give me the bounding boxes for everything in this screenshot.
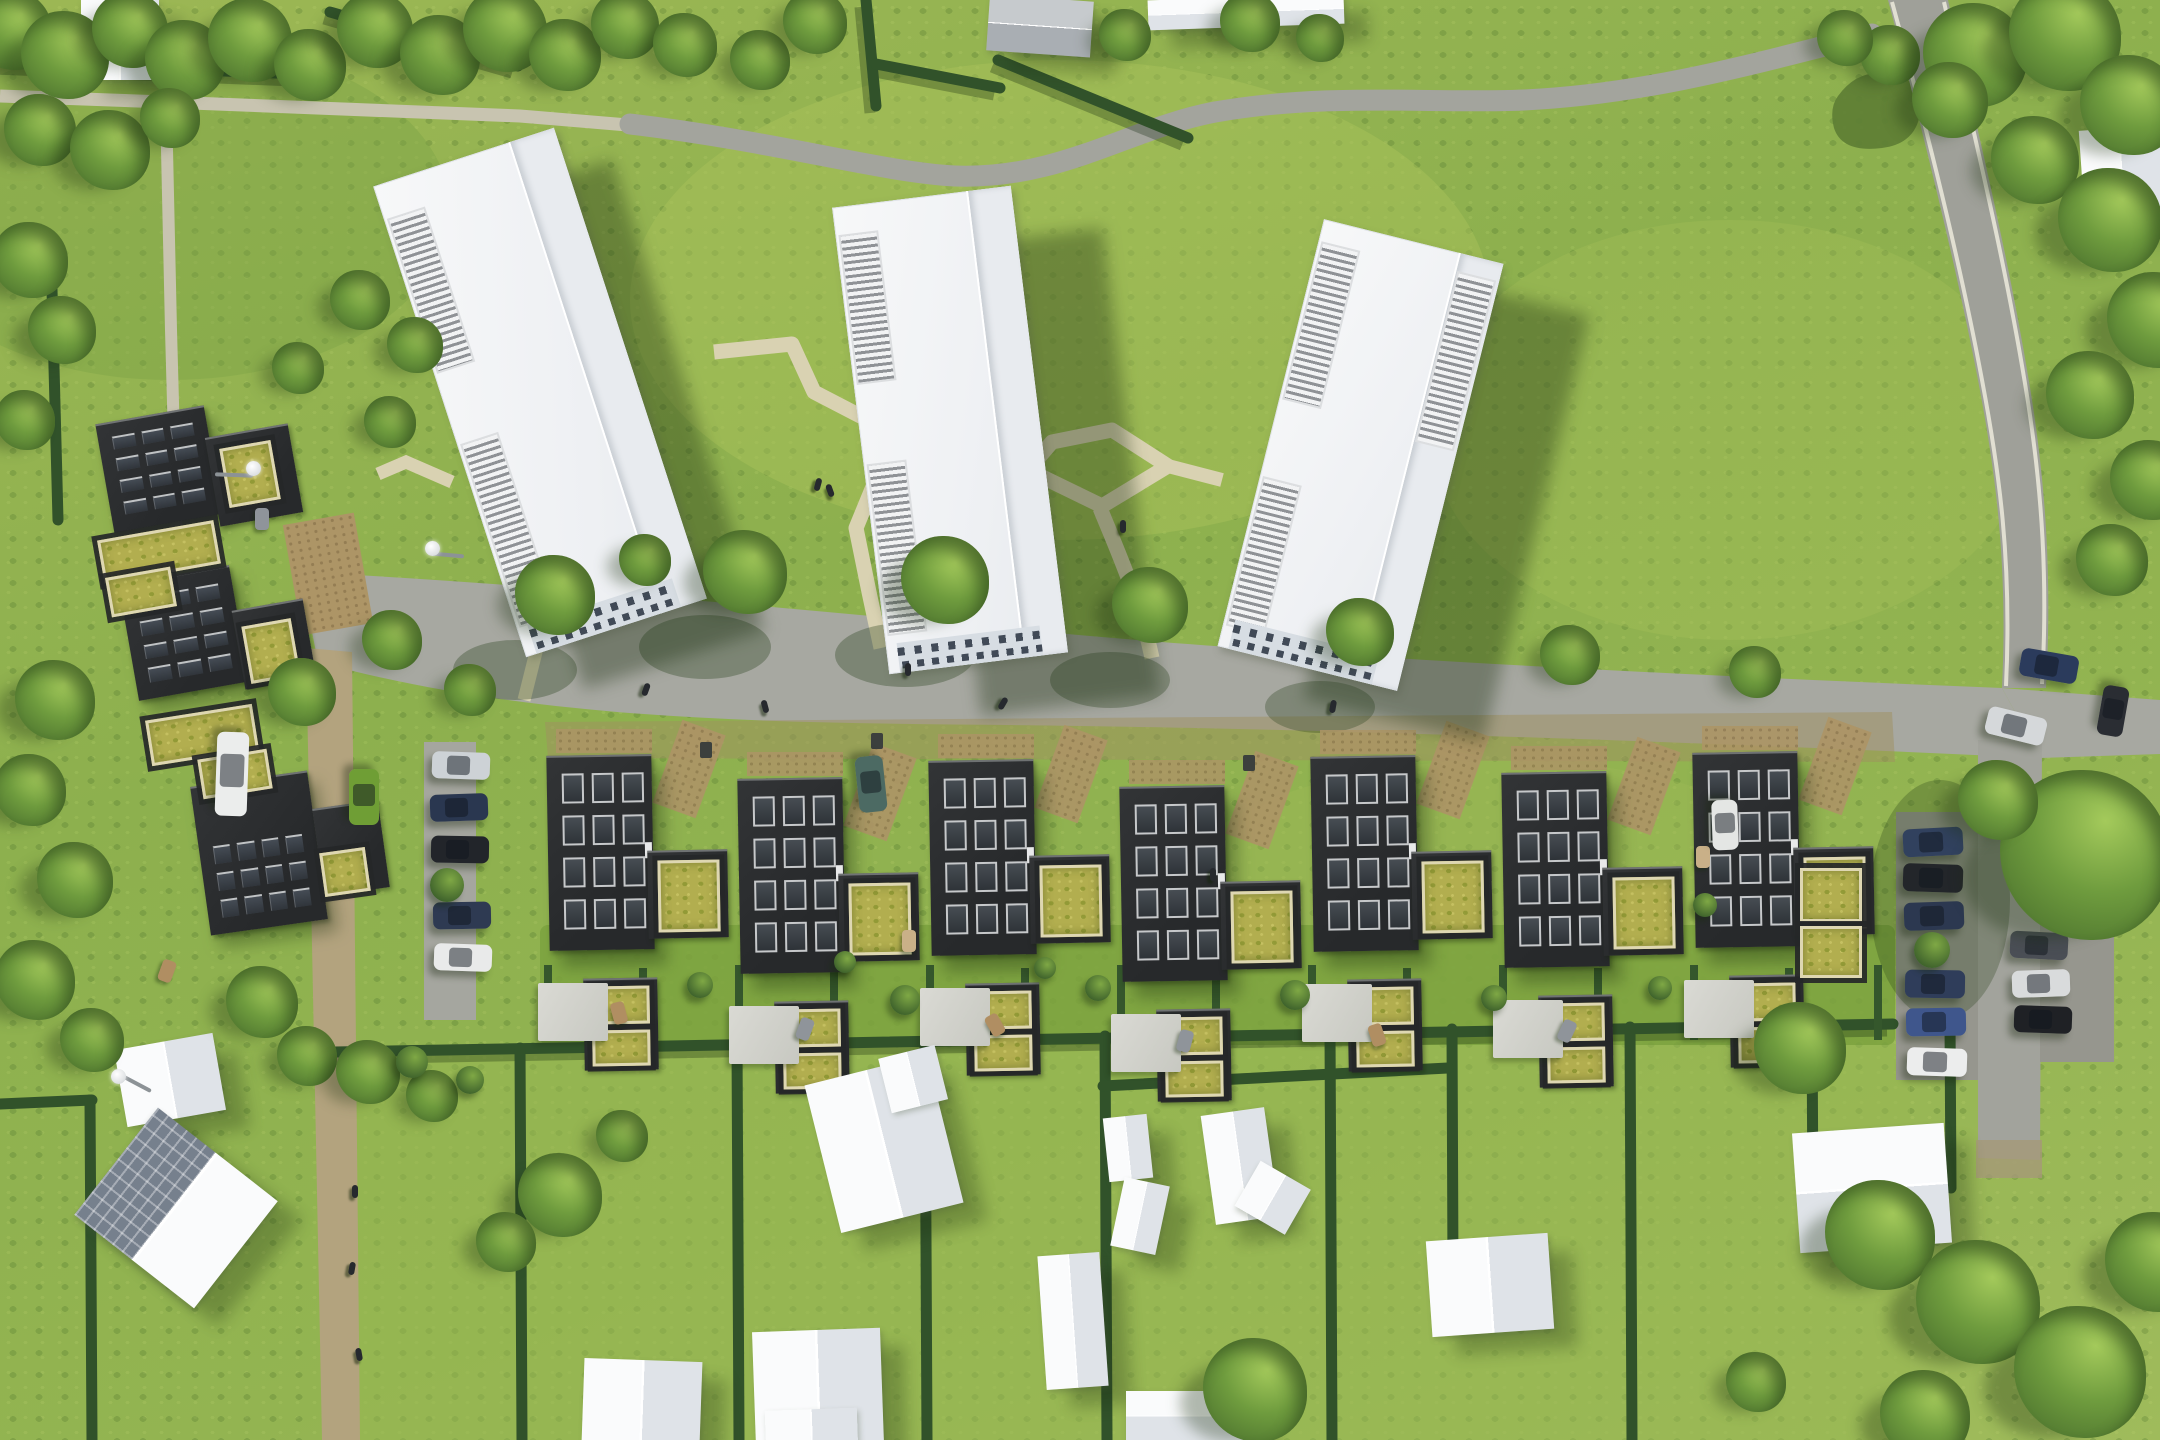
townhouse-block bbox=[546, 754, 654, 951]
solar-panel bbox=[213, 844, 233, 864]
roof-skylight bbox=[1006, 903, 1029, 933]
car-glass bbox=[353, 784, 375, 806]
front-yard-gravel bbox=[938, 734, 1034, 758]
garden-terrace bbox=[729, 1006, 799, 1064]
tree bbox=[272, 342, 324, 394]
garden-terrace bbox=[538, 983, 608, 1041]
car-glass bbox=[1715, 813, 1735, 834]
tree bbox=[330, 270, 390, 330]
street-lamp bbox=[246, 461, 261, 476]
parked-car bbox=[1904, 901, 1965, 931]
roof-skylight bbox=[1739, 854, 1762, 884]
solar-panel bbox=[112, 433, 137, 450]
tree bbox=[1540, 625, 1600, 685]
street-lamp bbox=[111, 1069, 126, 1084]
solar-panel bbox=[119, 476, 144, 493]
tree bbox=[387, 317, 443, 373]
roof-skylight bbox=[1518, 874, 1541, 904]
parked-car bbox=[433, 901, 491, 929]
pedestrian bbox=[1120, 520, 1126, 533]
roof-skylight bbox=[1135, 804, 1158, 834]
roof-skylight bbox=[594, 899, 617, 929]
car-glass bbox=[2027, 973, 2051, 994]
roof-skylight bbox=[974, 820, 997, 850]
parked-car bbox=[854, 755, 888, 814]
tree bbox=[0, 754, 66, 826]
car-glass bbox=[447, 755, 471, 776]
car-glass bbox=[1921, 1011, 1945, 1032]
parked-car bbox=[2018, 647, 2080, 685]
solar-panel bbox=[285, 834, 305, 854]
garden-furniture bbox=[1696, 846, 1710, 868]
roof-skylight bbox=[1387, 857, 1410, 887]
solar-panel bbox=[220, 897, 240, 917]
parked-car bbox=[1903, 863, 1964, 893]
solar-panel bbox=[177, 659, 203, 678]
tree bbox=[2076, 524, 2148, 596]
roof-skylight bbox=[562, 773, 585, 803]
car-glass bbox=[2033, 653, 2059, 677]
sedum-roof bbox=[1039, 864, 1102, 937]
roof-skylight bbox=[785, 922, 808, 952]
roof-skylight bbox=[1197, 929, 1220, 959]
roof-skylight bbox=[1517, 832, 1540, 862]
townhouse-block bbox=[1310, 755, 1418, 952]
tree bbox=[444, 664, 496, 716]
front-yard-gravel bbox=[1511, 746, 1607, 770]
solar-panel bbox=[264, 864, 284, 884]
solar-panel bbox=[288, 861, 308, 881]
white-house bbox=[1426, 1233, 1554, 1337]
waste-bin bbox=[871, 733, 883, 749]
roof-skylight bbox=[1165, 804, 1188, 834]
roof-skylight bbox=[814, 879, 837, 909]
roof-skylight bbox=[783, 838, 806, 868]
solar-panel bbox=[292, 887, 312, 907]
roof-skylight bbox=[624, 898, 647, 928]
white-house bbox=[582, 1358, 703, 1440]
solar-panel bbox=[169, 612, 195, 631]
pedestrian bbox=[760, 699, 769, 713]
roof-skylight bbox=[1768, 769, 1791, 799]
sedum-roof bbox=[1800, 926, 1862, 978]
parked-car bbox=[2012, 969, 2071, 998]
roof-skylight bbox=[564, 899, 587, 929]
tree bbox=[28, 296, 96, 364]
pedestrian bbox=[1329, 700, 1337, 714]
solar-building bbox=[95, 405, 222, 532]
bush bbox=[1034, 957, 1056, 979]
tree bbox=[1754, 1002, 1846, 1094]
roof-skylight bbox=[1327, 858, 1350, 888]
garden-furniture bbox=[157, 958, 178, 983]
sedum-roof bbox=[657, 859, 720, 932]
car-glass bbox=[1918, 831, 1943, 853]
tree bbox=[364, 396, 416, 448]
bush bbox=[890, 985, 920, 1015]
roof-skylight bbox=[562, 815, 585, 845]
roof-skylight bbox=[1196, 887, 1219, 917]
townhouse-block bbox=[928, 759, 1036, 956]
front-yard-gravel bbox=[1129, 760, 1225, 784]
house-wing bbox=[878, 1045, 948, 1113]
car-glass bbox=[1922, 1051, 1947, 1073]
pedestrian bbox=[905, 663, 911, 676]
roof-skylight bbox=[1326, 774, 1349, 804]
roof-skylight bbox=[946, 904, 969, 934]
solar-panel bbox=[139, 617, 165, 636]
solar-panel bbox=[237, 841, 257, 861]
pedestrian bbox=[825, 483, 835, 497]
tree bbox=[1817, 10, 1873, 66]
parked-car bbox=[1984, 705, 2049, 747]
tree bbox=[60, 1008, 124, 1072]
bush bbox=[396, 1046, 428, 1078]
solar-panel bbox=[143, 641, 169, 660]
roof-skylight bbox=[1708, 770, 1731, 800]
parked-car bbox=[1711, 800, 1739, 851]
tree bbox=[596, 1110, 648, 1162]
tree bbox=[1880, 1370, 1970, 1440]
roof-skylight bbox=[1548, 874, 1571, 904]
roof-skylight bbox=[1135, 846, 1158, 876]
sedum-roof bbox=[1421, 860, 1484, 933]
car-glass bbox=[449, 947, 473, 968]
front-yard-gravel bbox=[1320, 730, 1416, 754]
car-glass bbox=[2029, 1009, 2053, 1030]
tree bbox=[619, 534, 671, 586]
roof-terrace-louvers bbox=[838, 230, 896, 384]
car-glass bbox=[1918, 867, 1943, 889]
pedestrian bbox=[1210, 868, 1216, 881]
tree bbox=[0, 940, 75, 1020]
parked-car bbox=[1907, 1047, 1968, 1077]
roof-skylight bbox=[1769, 853, 1792, 883]
tree bbox=[37, 842, 113, 918]
tree bbox=[1958, 760, 2038, 840]
solar-panel bbox=[207, 654, 233, 673]
roof-terrace-louvers bbox=[1225, 476, 1301, 635]
garden-terrace bbox=[1302, 984, 1372, 1042]
tree bbox=[0, 222, 68, 298]
solar-panel bbox=[141, 428, 166, 445]
tree bbox=[0, 390, 55, 450]
roof-skylight bbox=[1740, 896, 1763, 926]
roof-skylight bbox=[1166, 888, 1189, 918]
roof-skylight bbox=[1768, 811, 1791, 841]
bush bbox=[1693, 893, 1717, 917]
bush bbox=[1085, 975, 1111, 1001]
tree bbox=[901, 536, 989, 624]
roof-skylight bbox=[1004, 777, 1027, 807]
roof-skylight bbox=[1386, 773, 1409, 803]
car-glass bbox=[448, 905, 472, 925]
parked-car bbox=[432, 751, 491, 780]
garden-terrace bbox=[1684, 980, 1754, 1038]
parked-car bbox=[1906, 1007, 1966, 1036]
roof-skylight bbox=[1738, 812, 1761, 842]
roof-skylight bbox=[784, 880, 807, 910]
bush bbox=[1648, 976, 1672, 1000]
car-glass bbox=[445, 797, 469, 818]
solar-panel bbox=[261, 837, 281, 857]
solar-panel bbox=[244, 894, 264, 914]
parked-car bbox=[2014, 1005, 2073, 1034]
front-yard-gravel bbox=[747, 752, 843, 776]
front-yard-gravel bbox=[556, 729, 652, 753]
roof-skylight bbox=[1738, 770, 1761, 800]
pedestrian bbox=[641, 682, 651, 696]
roof-skylight bbox=[944, 820, 967, 850]
roof-skylight bbox=[1357, 858, 1380, 888]
solar-panel bbox=[152, 493, 177, 510]
sedum-roof bbox=[319, 847, 371, 897]
solar-panel bbox=[123, 498, 148, 515]
car-glass bbox=[1919, 905, 1944, 927]
roof-skylight bbox=[1577, 831, 1600, 861]
waste-bin bbox=[700, 742, 712, 758]
car-glass bbox=[220, 753, 245, 787]
tree bbox=[1729, 646, 1781, 698]
bush bbox=[1481, 985, 1507, 1011]
roof-skylight bbox=[1547, 832, 1570, 862]
white-house bbox=[1037, 1252, 1108, 1390]
roof-skylight bbox=[975, 862, 998, 892]
car-glass bbox=[1920, 973, 1944, 994]
solar-panel bbox=[170, 423, 195, 440]
sedum-roof bbox=[1612, 876, 1675, 949]
solar-panel bbox=[116, 455, 141, 472]
solar-panel bbox=[148, 664, 174, 683]
roof-skylight bbox=[1358, 900, 1381, 930]
tree bbox=[15, 660, 95, 740]
parked-car bbox=[2096, 684, 2130, 738]
tree bbox=[336, 1040, 400, 1104]
tree bbox=[703, 530, 787, 614]
roof-skylight bbox=[755, 922, 778, 952]
garden-terrace bbox=[920, 988, 990, 1046]
solar-panel bbox=[149, 471, 174, 488]
tree bbox=[515, 555, 595, 635]
roof-skylight bbox=[1356, 816, 1379, 846]
parked-car bbox=[349, 769, 379, 825]
tree bbox=[268, 658, 336, 726]
roof-skylight bbox=[1004, 819, 1027, 849]
roof-skylight bbox=[783, 796, 806, 826]
roof-skylight bbox=[592, 773, 615, 803]
roof-skylight bbox=[1770, 895, 1793, 925]
roof-skylight bbox=[1326, 816, 1349, 846]
garden-furniture bbox=[255, 508, 269, 530]
tree bbox=[1296, 14, 1344, 62]
solar-panel bbox=[145, 449, 170, 466]
solar-panel bbox=[182, 488, 207, 505]
roof-skylight bbox=[815, 921, 838, 951]
roof-skylight bbox=[1356, 774, 1379, 804]
tree bbox=[653, 13, 717, 77]
bush bbox=[834, 951, 856, 973]
roof-skylight bbox=[754, 880, 777, 910]
roof-skylight bbox=[945, 862, 968, 892]
tree bbox=[140, 88, 200, 148]
townhouse-green-wing bbox=[1411, 850, 1493, 939]
aerial-development-rendering bbox=[0, 0, 2160, 1440]
roof-skylight bbox=[622, 772, 645, 802]
roof-skylight bbox=[813, 795, 836, 825]
house-wing bbox=[765, 1408, 859, 1440]
roof-skylight bbox=[1577, 789, 1600, 819]
townhouse-green-wing bbox=[1029, 854, 1111, 943]
roof-skylight bbox=[1579, 915, 1602, 945]
tree bbox=[226, 966, 298, 1038]
white-house bbox=[752, 1328, 884, 1440]
bush bbox=[430, 868, 464, 902]
solar-panel bbox=[216, 871, 236, 891]
pedestrian bbox=[355, 1348, 363, 1362]
roof-skylight bbox=[563, 857, 586, 887]
roof-skylight bbox=[753, 796, 776, 826]
roof-skylight bbox=[976, 904, 999, 934]
roof-skylight bbox=[592, 815, 615, 845]
roof-skylight bbox=[944, 778, 967, 808]
solar-panel bbox=[203, 630, 229, 649]
parked-car bbox=[434, 943, 493, 972]
roof-skylight bbox=[623, 856, 646, 886]
solar-panel bbox=[195, 584, 221, 603]
bush bbox=[456, 1066, 484, 1094]
roof-skylight bbox=[1547, 790, 1570, 820]
bush bbox=[1914, 932, 1950, 968]
solar-panel bbox=[199, 607, 225, 626]
white-house bbox=[804, 1055, 963, 1233]
roof-skylight bbox=[1195, 803, 1218, 833]
roof-skylight bbox=[593, 857, 616, 887]
roof-skylight bbox=[974, 778, 997, 808]
parked-car bbox=[431, 835, 489, 863]
roof-skylight bbox=[1519, 916, 1542, 946]
white-house bbox=[1103, 1114, 1153, 1182]
roof-skylight bbox=[1328, 900, 1351, 930]
roof-skylight bbox=[1549, 916, 1572, 946]
solar-panel bbox=[178, 466, 203, 483]
white-house bbox=[986, 0, 1094, 58]
tree bbox=[1726, 1352, 1786, 1412]
car-glass bbox=[2000, 712, 2028, 738]
tree bbox=[362, 610, 422, 670]
townhouse-green-wing bbox=[1220, 880, 1302, 969]
front-yard-gravel bbox=[1702, 726, 1798, 750]
roof-skylight bbox=[1386, 815, 1409, 845]
parked-car bbox=[1905, 969, 1965, 998]
tree bbox=[476, 1212, 536, 1272]
solar-panel bbox=[240, 867, 260, 887]
roof-skylight bbox=[753, 838, 776, 868]
car-glass bbox=[446, 839, 470, 859]
car-glass bbox=[2102, 698, 2124, 721]
car-glass bbox=[859, 770, 882, 794]
roof-skylight bbox=[1517, 790, 1540, 820]
bush bbox=[1280, 980, 1310, 1010]
roof-skylight bbox=[1137, 930, 1160, 960]
roof-skylight bbox=[1388, 899, 1411, 929]
garden-terrace bbox=[1111, 1014, 1181, 1072]
garden-terrace bbox=[1493, 1000, 1563, 1058]
tree bbox=[1912, 62, 1988, 138]
garden-furniture bbox=[902, 930, 916, 952]
solar-panel bbox=[174, 444, 199, 461]
tree bbox=[1326, 598, 1394, 666]
townhouse-green-wing bbox=[647, 849, 729, 938]
pedestrian bbox=[813, 477, 822, 491]
bush bbox=[687, 972, 713, 998]
roof-skylight bbox=[1136, 888, 1159, 918]
sedum-roof bbox=[1800, 868, 1862, 922]
tree bbox=[1203, 1338, 1307, 1440]
roof-skylight bbox=[1578, 873, 1601, 903]
roof-skylight bbox=[622, 814, 645, 844]
roof-skylight bbox=[1005, 861, 1028, 891]
townhouse-block bbox=[737, 777, 845, 974]
tree bbox=[1099, 9, 1151, 61]
solar-panel bbox=[173, 635, 199, 654]
roof-skylight bbox=[1165, 846, 1188, 876]
solar-panel bbox=[268, 891, 288, 911]
townhouse-block bbox=[1119, 785, 1227, 982]
townhouse-block bbox=[1501, 771, 1609, 968]
tree bbox=[2046, 351, 2134, 439]
parked-car bbox=[430, 793, 489, 822]
roof-skylight bbox=[813, 837, 836, 867]
tree bbox=[1112, 567, 1188, 643]
townhouse-green-wing bbox=[1602, 866, 1684, 955]
pedestrian bbox=[352, 1185, 358, 1198]
waste-bin bbox=[1243, 755, 1255, 771]
sedum-roof bbox=[1230, 890, 1293, 963]
roof-terrace-louvers bbox=[1282, 241, 1360, 409]
white-house bbox=[1201, 1107, 1280, 1225]
street-lamp bbox=[425, 541, 440, 556]
parked-car bbox=[215, 731, 250, 816]
scene-objects bbox=[0, 0, 2160, 1440]
pedestrian bbox=[348, 1262, 356, 1276]
roof-skylight bbox=[1167, 930, 1190, 960]
roof-skylight bbox=[1709, 854, 1732, 884]
